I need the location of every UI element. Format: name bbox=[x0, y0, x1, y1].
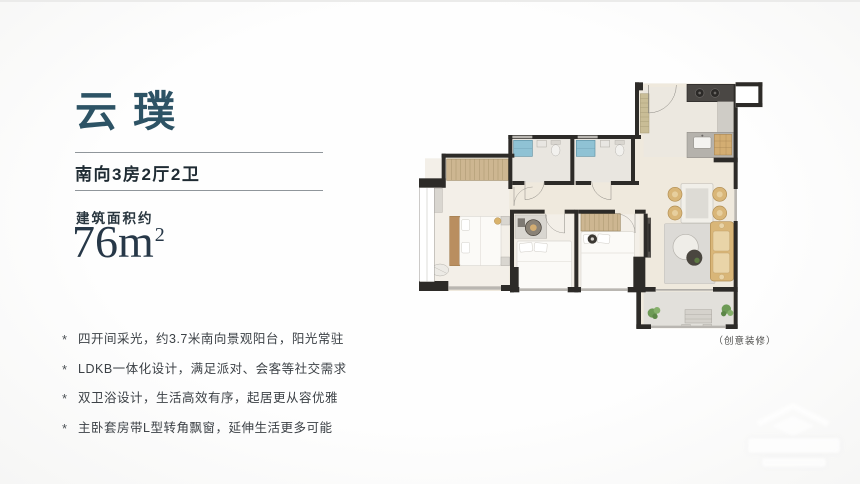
bullet-icon: * bbox=[62, 331, 68, 350]
area-number: 76 bbox=[72, 216, 118, 267]
ac-platform bbox=[736, 82, 763, 107]
bullet-icon: * bbox=[62, 361, 68, 380]
kitchen-stove-counter bbox=[687, 84, 736, 101]
watermark-logo bbox=[734, 400, 852, 474]
unit-title: 云璞 bbox=[75, 90, 191, 136]
slide: 云璞 南向3房2厅2卫 建筑面积约 76m2 *四开间采光，约3.7米南向景观阳… bbox=[0, 0, 860, 484]
sofa bbox=[710, 222, 733, 281]
feature-text: 双卫浴设计，生活高效有序，起居更从容优雅 bbox=[78, 391, 338, 405]
feature-text: 主卧套房带L型转角飘窗，延伸生活更多可能 bbox=[78, 421, 332, 435]
bedroom2-desk bbox=[515, 215, 547, 238]
house-logo-icon bbox=[734, 400, 852, 474]
feature-text: LDKB一体化设计，满足派对、会客等社交需求 bbox=[78, 362, 347, 376]
floorplan-drawing bbox=[415, 75, 775, 355]
feature-text: 四开间采光，约3.7米南向景观阳台，阳光常驻 bbox=[78, 332, 344, 346]
top-edge-line bbox=[0, 0, 860, 2]
feature-list: *四开间采光，约3.7米南向景观阳台，阳光常驻 *LDKB一体化设计，满足派对、… bbox=[62, 330, 392, 449]
bedroom3-fan bbox=[588, 234, 597, 243]
watermark-text-blur bbox=[748, 438, 840, 453]
bedroom2-bed bbox=[517, 241, 572, 290]
watermark-subtext-blur bbox=[762, 458, 826, 467]
divider-line-top bbox=[75, 152, 323, 153]
wardrobe-master bbox=[447, 159, 509, 180]
wardrobe-bedroom3 bbox=[581, 214, 620, 231]
feature-item: *四开间采光，约3.7米南向景观阳台，阳光常驻 bbox=[62, 330, 392, 348]
floorplan-caption: （创意装修） bbox=[660, 333, 830, 347]
area-value: 76m2 bbox=[72, 218, 165, 266]
unit-subtitle: 南向3房2厅2卫 bbox=[75, 160, 200, 185]
feature-item: *主卧套房带L型转角飘窗，延伸生活更多可能 bbox=[62, 419, 392, 437]
entry-shoe-cabinet bbox=[640, 94, 649, 133]
kitchen-sink-counter bbox=[687, 132, 734, 157]
area-superscript: 2 bbox=[155, 224, 165, 246]
feature-item: *LDKB一体化设计，满足派对、会客等社交需求 bbox=[62, 360, 392, 378]
area-unit: m bbox=[118, 216, 154, 267]
bullet-icon: * bbox=[62, 420, 68, 439]
feature-item: *双卫浴设计，生活高效有序，起居更从容优雅 bbox=[62, 389, 392, 407]
bullet-icon: * bbox=[62, 390, 68, 409]
master-bed bbox=[450, 216, 501, 265]
divider-line-bottom bbox=[75, 190, 323, 191]
